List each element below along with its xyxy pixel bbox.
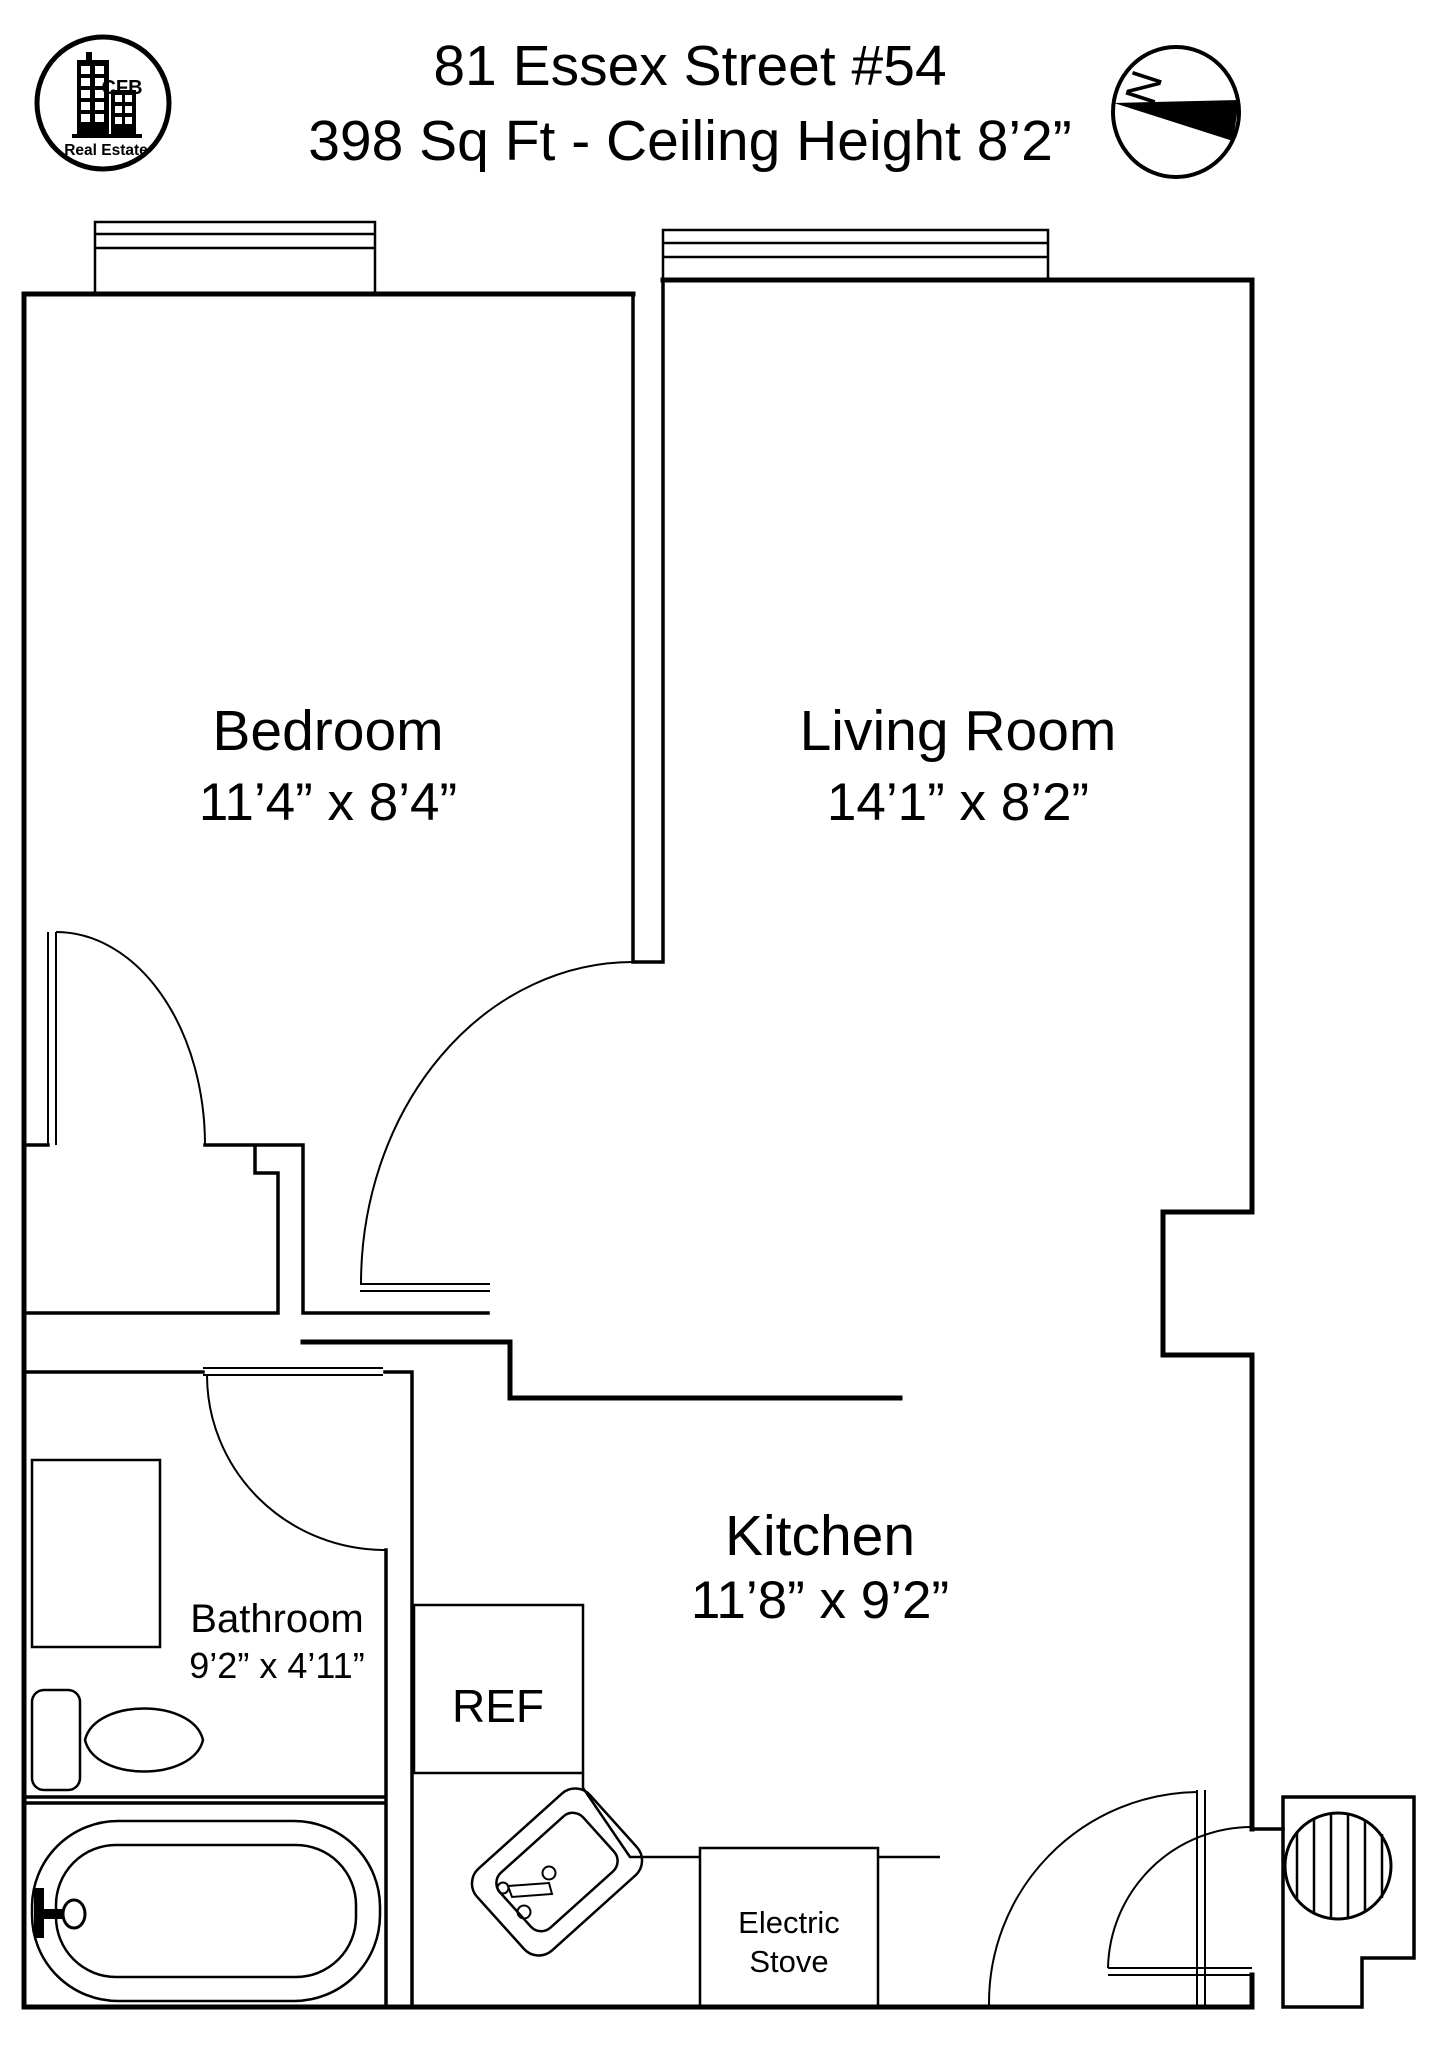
bedroom-door-leaf — [48, 932, 56, 1145]
stove-label-line1: Electric — [738, 1905, 840, 1940]
bathtub-inner — [56, 1845, 356, 1977]
kitchen-dimensions: 11’8” x 9’2” — [691, 1571, 949, 1630]
stove-label-line2: Stove — [749, 1944, 828, 1979]
refrigerator-label: REF — [452, 1680, 544, 1732]
bathroom-closet — [32, 1460, 160, 1647]
north-arrow-icon: N — [1113, 47, 1239, 177]
floor-plan-page: CFB Real Estate 81 Essex Street #54 398 … — [0, 0, 1445, 2045]
bedroom-dimensions: 11’4” x 8’4” — [199, 773, 457, 832]
page-title-line1: 81 Essex Street #54 — [433, 34, 946, 98]
kitchen-door-swing — [989, 1792, 1197, 2005]
entry-door-swing — [1108, 1827, 1252, 1968]
bathroom-door-swing — [207, 1375, 385, 1550]
page-title-line2: 398 Sq Ft - Ceiling Height 8’2” — [308, 109, 1072, 173]
bathroom-door-leaf — [203, 1368, 383, 1375]
fixtures — [32, 1460, 1414, 2007]
toilet-bowl-icon — [85, 1709, 203, 1772]
toilet-tank-icon — [32, 1690, 80, 1790]
cfb-real-estate-logo-icon: CFB Real Estate — [37, 37, 169, 169]
sink-spout-icon — [508, 1883, 552, 1897]
floor-plan-canvas: CFB Real Estate 81 Essex Street #54 398 … — [0, 0, 1445, 2045]
bathtub-faucet-icon — [34, 1888, 85, 1938]
kitchen-sink-icon — [464, 1780, 651, 1963]
living-room-door-swing — [361, 962, 633, 1284]
windows — [95, 222, 1048, 294]
kitchen-label: Kitchen — [725, 1504, 915, 1568]
sink-handle-icon — [498, 1883, 509, 1894]
bathroom-dimensions: 9’2” x 4’11” — [189, 1645, 364, 1686]
bathroom-label: Bathroom — [190, 1597, 363, 1641]
bedroom-label: Bedroom — [212, 699, 443, 763]
living-room-dimensions: 14’1” x 8’2” — [827, 773, 1089, 832]
kitchen-counter — [583, 1773, 940, 1857]
living-room-label: Living Room — [800, 699, 1117, 763]
interior-walls — [24, 280, 1283, 2007]
bedroom-window-icon — [95, 222, 375, 294]
walls — [24, 280, 1283, 2007]
hall-kitchen-partition — [303, 1342, 900, 1398]
header: CFB Real Estate 81 Essex Street #54 398 … — [37, 34, 1239, 177]
room-labels: Bedroom 11’4” x 8’4” Living Room 14’1” x… — [189, 699, 1116, 1979]
living-room-window-icon — [663, 230, 1048, 280]
sink-faucet-icon — [543, 1867, 556, 1880]
logo-subtitle: Real Estate — [64, 142, 148, 159]
bedroom-door-swing — [56, 932, 205, 1145]
logo-acronym: CFB — [101, 77, 142, 99]
entry-door-leaf — [1108, 1968, 1252, 1975]
kitchen-door-leaf — [1197, 1790, 1205, 2005]
living-room-door-leaf — [360, 1284, 490, 1291]
sink-handle-icon — [518, 1906, 531, 1919]
vent-fan-icon — [1285, 1813, 1391, 1919]
